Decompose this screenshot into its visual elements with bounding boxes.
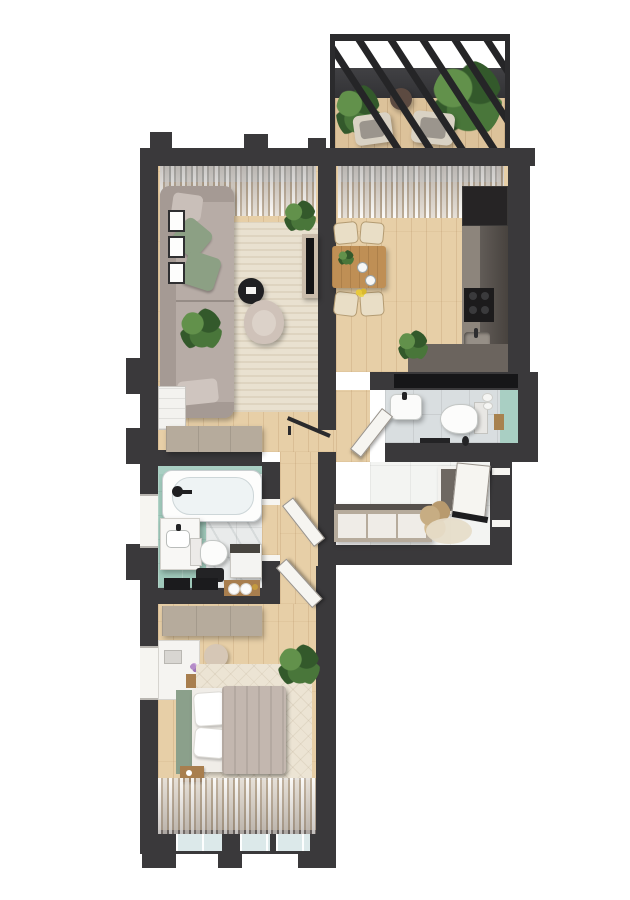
wc-niche-band: [394, 374, 534, 388]
wc-toilet-bowl: [440, 404, 478, 434]
wc-paper-roll-2: [483, 402, 493, 410]
nightstand-cup: [186, 770, 192, 776]
bedroom-curtains: [158, 778, 316, 834]
pilaster-left-3: [126, 544, 140, 580]
bathroom-toilet-bowl: [200, 540, 228, 566]
bathroom-door-gap: [262, 505, 280, 555]
wall-bedroom-right: [316, 566, 336, 852]
hall-wardrobe: [166, 426, 262, 452]
entry-door-jamb-top: [492, 468, 510, 475]
hall-round-rug: [426, 518, 472, 544]
white-cabinet-niche: [158, 386, 186, 430]
kitchen-faucet: [474, 328, 478, 338]
tv: [306, 238, 314, 294]
pilaster-bottom-1: [142, 854, 176, 868]
washing-machine-panel: [230, 544, 260, 553]
shelf-towel-2: [240, 583, 252, 595]
wall-divider-living-dining: [318, 166, 336, 430]
pilaster-left-2: [126, 428, 140, 464]
armchair-seat: [252, 310, 276, 336]
wall-wc-bottom: [385, 443, 538, 462]
bathroom-black-cabinet-1: [164, 578, 190, 590]
table-plant: [338, 250, 354, 266]
bedroom-window-niche: [140, 646, 158, 700]
bathroom-window-niche: [140, 494, 158, 548]
kitchen-tall-unit: [462, 186, 508, 226]
living-plant-top: [284, 200, 316, 234]
bathroom-vanity-basin: [166, 530, 190, 548]
burner-3: [469, 306, 477, 314]
burner-4: [481, 306, 489, 314]
hall-sideboard-front-2: [368, 514, 396, 538]
picture-frame-3: [168, 262, 185, 284]
pilaster-top-2: [244, 134, 268, 148]
shelf-bottle-gold: [252, 584, 258, 590]
kitchen-plant: [398, 330, 428, 362]
entry-door-leaf: [451, 462, 490, 517]
wc-paper-roll-1: [482, 393, 493, 402]
bathtub-basin: [172, 477, 254, 515]
bedroom-window-3: [276, 834, 310, 851]
wc-basin-faucet: [402, 392, 407, 400]
bathroom-vanity-faucet: [176, 524, 181, 531]
wall-top: [140, 148, 535, 166]
bed-blanket: [222, 686, 286, 774]
pilaster-bottom-2: [218, 854, 242, 868]
pergola-frame-right: [505, 34, 510, 150]
bedroom-plant: [278, 644, 320, 688]
wall-right-kitchen: [508, 148, 530, 372]
bathroom-black-cabinet-2: [192, 578, 218, 590]
pilaster-top-3: [308, 138, 326, 150]
dining-chair-1: [333, 221, 359, 245]
pergola-frame-left: [330, 34, 335, 150]
wc-wood-box: [494, 414, 504, 430]
hall-sideboard-front-1: [338, 514, 366, 538]
burner-1: [469, 292, 477, 300]
picture-frame-1: [168, 210, 185, 232]
living-plant-bottom: [180, 308, 222, 352]
bathtub-faucet-arm: [180, 490, 192, 494]
bedroom-wardrobe: [162, 606, 262, 636]
pilaster-top-1: [150, 132, 172, 148]
plate-1: [357, 262, 368, 273]
wall-bathroom-top: [158, 450, 262, 466]
picture-frame-2: [168, 236, 185, 258]
floor-plan-canvas: [0, 0, 630, 900]
wall-left-upper: [140, 166, 158, 462]
bedroom-window-1: [176, 834, 222, 851]
balcony: [330, 34, 510, 150]
pilaster-left-1: [126, 358, 140, 394]
bedroom-window-2: [240, 834, 270, 851]
yellow-flowers: [355, 288, 368, 297]
coffee-table-card: [246, 287, 256, 294]
sofa-cushion-seam: [176, 300, 234, 302]
hall-sideboard-top-edge: [334, 504, 432, 510]
wall-hall-bottom: [318, 545, 512, 565]
wc-toilet-brush: [462, 436, 469, 446]
bathroom-door-jamb-bottom: [262, 555, 280, 561]
entry-door-jamb-bottom: [492, 520, 510, 527]
burner-2: [481, 292, 489, 300]
living-glass-door-handle: [288, 426, 291, 435]
bathroom-door-jamb-top: [262, 499, 280, 505]
bed-headboard: [176, 690, 192, 774]
dining-chair-2: [359, 221, 385, 245]
shelf-towel-1: [228, 583, 240, 595]
pergola-frame-top: [330, 34, 510, 41]
desk-laptop: [164, 650, 182, 664]
wc-towel-rail: [420, 438, 450, 443]
pilaster-bottom-3: [298, 854, 336, 868]
plate-2: [365, 275, 376, 286]
